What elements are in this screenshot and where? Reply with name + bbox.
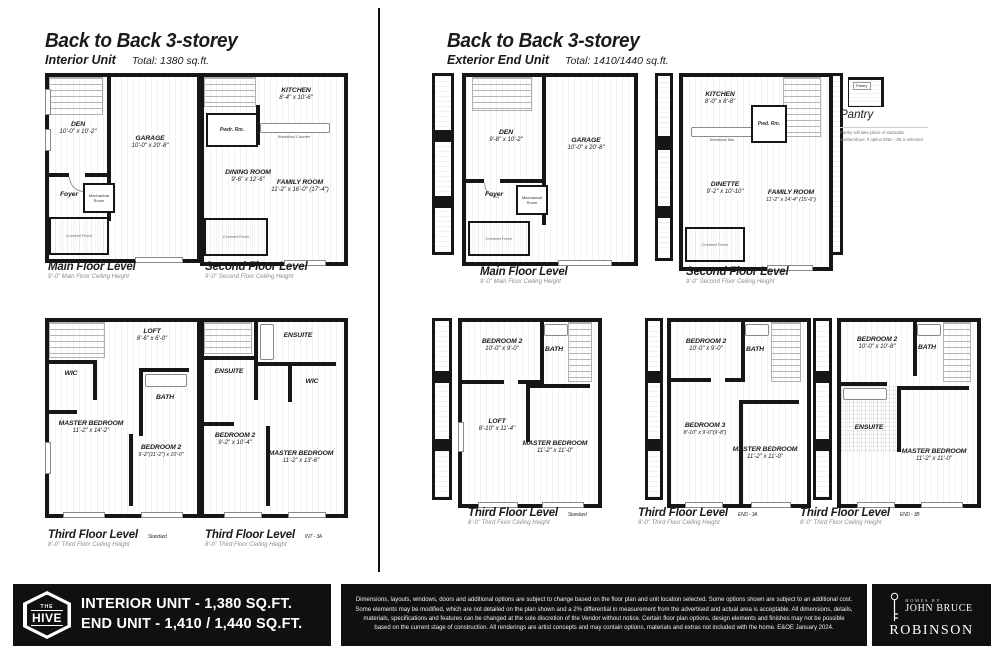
- room-label-bath: BATH: [143, 394, 187, 402]
- wall-segment: [500, 179, 546, 183]
- pantry-heading: Pantry: [840, 109, 873, 121]
- bathtub-fixture: [145, 374, 187, 387]
- breakfast-bar-island: [691, 127, 755, 137]
- stairs: [943, 322, 971, 382]
- caption-end-third-3b: Third Floor LevelEND - 3B 8'-0" Third Fl…: [800, 507, 919, 526]
- pantry-diagram: Pantry: [848, 77, 884, 107]
- room-label-bedroom2: BEDROOM 2 9'-2"(11'-2") x 10'-0": [133, 444, 189, 459]
- caption-end-main: Main Floor Level 9'-0" Main Floor Ceilin…: [480, 266, 568, 285]
- caption-interior-main: Main Floor Level 9'-0" Main Floor Ceilin…: [48, 261, 136, 280]
- wall-segment: [258, 362, 336, 366]
- wall-segment: [49, 173, 69, 177]
- room-label-family: FAMILY ROOM 11'-2" x 14'-4" (15'-6"): [763, 189, 819, 204]
- stairs: [49, 322, 105, 358]
- caption-end-second: Second Floor Level 9'-0" Second Floor Ce…: [686, 266, 788, 285]
- window-marker: [458, 422, 464, 452]
- mechanical-room: Mechanical Room: [516, 185, 548, 215]
- plan-end-third-3a: BEDROOM 2 10'-0" x 9'-0" BATH BEDROOM 3 …: [645, 318, 803, 510]
- covered-porch: Covered Porch: [468, 221, 530, 256]
- stairs: [49, 77, 103, 115]
- door-arc: [69, 177, 84, 192]
- side-wall-strip: [655, 73, 673, 261]
- bathtub-fixture: [745, 324, 769, 336]
- room-label-family: FAMILY ROOM 11'-2" x 16'-0" (17'-4"): [266, 179, 334, 195]
- room-label-garage: GARAGE 10'-0" x 20'-8": [550, 137, 622, 153]
- room-label-bedroom2: BEDROOM 2 10'-0" x 9'-0": [466, 338, 538, 354]
- room-label-den: DEN 9'-8" x 10'-2": [472, 129, 540, 145]
- brand-name-line1: JOHN BRUCE: [905, 603, 972, 615]
- footer-disclaimer-bar: Dimensions, layouts, windows, doors and …: [341, 584, 867, 646]
- right-unit-type: Exterior End Unit: [447, 53, 549, 67]
- caption-interior-second: Second Floor Level 9'-0" Second Floor Ce…: [205, 261, 307, 280]
- room-label-ensuite-left: ENSUITE: [204, 368, 254, 376]
- side-wall-strip: [813, 318, 832, 500]
- footer-builder-logo: HOMES BY JOHN BRUCE ROBINSON: [872, 584, 991, 646]
- caption-end-third-standard: Third Floor LevelStandard 8'-0" Third Fl…: [468, 507, 587, 526]
- wall-segment: [526, 384, 530, 442]
- wall-segment: [725, 378, 745, 382]
- window-marker: [63, 512, 105, 518]
- wall-segment: [93, 360, 97, 400]
- window-marker: [45, 89, 51, 115]
- left-unit-type: Interior Unit: [45, 53, 116, 67]
- plan-interior-second-floor: Pwdr. Rm. KITCHEN 8'-4" x 10'-6" Breakfa…: [200, 73, 348, 266]
- window-marker: [224, 512, 262, 518]
- wall-segment: [254, 356, 258, 400]
- stairs: [204, 77, 256, 107]
- wall-segment: [49, 360, 93, 364]
- room-label-bath: BATH: [540, 346, 568, 354]
- side-wall-strip: [432, 318, 452, 500]
- room-label-wic: WIC: [49, 370, 93, 378]
- room-label-foyer: Foyer: [474, 191, 514, 199]
- wall-segment: [466, 179, 484, 183]
- room-label-loft: LOFT 8'-10" x 11'-4": [466, 418, 528, 434]
- covered-porch: Covered Porch: [204, 218, 268, 256]
- powder-room: Pwd. Rm.: [751, 105, 787, 143]
- powder-room: Pwdr. Rm.: [206, 113, 258, 147]
- end-unit-area: END UNIT - 1,410 / 1,440 SQ.FT.: [81, 615, 302, 635]
- wall-segment: [49, 410, 77, 414]
- closet-wall: [743, 400, 799, 404]
- plan-end-third-3b: BEDROOM 2 10'-0" x 10'-8" BATH ENSUITE M…: [813, 318, 973, 510]
- room-label-bath: BATH: [741, 346, 769, 354]
- stairs: [783, 77, 821, 137]
- room-label-master: MASTER BEDROOM 11'-2" x 11'-0": [731, 446, 799, 462]
- key-icon: [890, 592, 899, 622]
- caption-interior-third-standard: Third Floor LevelStandard 8'-0" Third Fl…: [48, 529, 167, 548]
- window-marker: [921, 502, 963, 508]
- covered-porch: Covered Porch: [685, 227, 745, 262]
- wall-segment: [204, 356, 254, 360]
- right-section-title: Back to Back 3-storey: [447, 30, 640, 53]
- room-label-wic: WIC: [292, 378, 332, 386]
- stairs: [204, 322, 252, 354]
- window-marker: [288, 512, 326, 518]
- room-label-ensuite-upper: ENSUITE: [262, 332, 334, 340]
- room-label-bedroom2: BEDROOM 2 10'-0" x 10'-8": [843, 336, 911, 352]
- left-section-subtitle: Interior Unit Total: 1380 sq.ft.: [45, 53, 209, 67]
- room-label-master: MASTER BEDROOM 11'-2" x 11'-0": [520, 440, 590, 456]
- room-label-master: MASTER BEDROOM 11'-2" x 14'-2": [49, 420, 133, 436]
- right-total-area: Total: 1410/1440 sq.ft.: [565, 55, 669, 67]
- right-section-subtitle: Exterior End Unit Total: 1410/1440 sq.ft…: [447, 53, 669, 67]
- wall-segment: [143, 368, 189, 372]
- wall-segment: [254, 322, 258, 356]
- room-label-bath: BATH: [913, 344, 941, 352]
- room-label-bedroom2: BEDROOM 2 9'-2" x 10'-4": [204, 432, 266, 448]
- stairs: [472, 77, 532, 111]
- mechanical-room: Mechanical Room: [83, 183, 115, 213]
- plan-end-third-standard: BEDROOM 2 10'-0" x 9'-0" BATH LOFT 8'-10…: [432, 318, 594, 510]
- interior-unit-area: INTERIOR UNIT - 1,380 SQ.FT.: [81, 595, 302, 615]
- bathtub-fixture: [843, 388, 887, 400]
- room-label-kitchen: KITCHEN 8'-0" x 8'-8": [687, 91, 753, 107]
- closet-wall: [530, 384, 590, 388]
- bathtub-fixture: [544, 324, 568, 336]
- footer-summary-bar: THE HIVE INTERIOR UNIT - 1,380 SQ.FT. EN…: [13, 584, 331, 646]
- pantry-note: Pantry will take place of stackable wash…: [840, 127, 928, 143]
- room-label-bedroom3: BEDROOM 3 8'-10" x 9'-0"(9'-8"): [671, 422, 739, 437]
- room-label-dinette: DINETTE 9'-2" x 10'-10": [689, 181, 761, 197]
- room-label-kitchen: KITCHEN 8'-4" x 10'-6": [260, 87, 332, 103]
- garage-door-marker: [135, 257, 183, 263]
- wall-segment: [671, 378, 711, 382]
- room-label-loft: LOFT 8'-6" x 6'-0": [119, 328, 185, 344]
- bathtub-fixture: [260, 324, 274, 360]
- side-wall-strip: [432, 73, 454, 255]
- plan-interior-third-standard: WIC LOFT 8'-6" x 6'-0" BATH MASTER BEDRO…: [45, 318, 201, 518]
- room-label-foyer: Foyer: [51, 191, 87, 199]
- wall-segment: [266, 426, 270, 506]
- closet-wall: [901, 386, 969, 390]
- window-marker: [45, 442, 51, 474]
- side-wall-strip: [645, 318, 663, 500]
- room-label-ensuite: ENSUITE: [841, 424, 897, 432]
- stairs: [771, 322, 801, 382]
- floorplan-sheet: { "left": { "title": "Back to Back 3-sto…: [0, 0, 1001, 648]
- left-section-title: Back to Back 3-storey: [45, 30, 238, 53]
- room-label-garage: GARAGE 10'-0" x 20'-8": [113, 135, 187, 151]
- wall-segment: [204, 422, 234, 426]
- breakfast-counter-island: [260, 123, 330, 133]
- bathtub-fixture: [917, 324, 941, 336]
- room-label-master: MASTER BEDROOM 11'-2" x 11'-0": [899, 448, 969, 464]
- window-marker: [141, 512, 183, 518]
- pantry-legend: Pantry Pantry Pantry will take place of …: [840, 77, 936, 167]
- brand-name-line2: ROBINSON: [889, 623, 973, 639]
- caption-end-third-3a: Third Floor LevelEND - 3A 8'-0" Third Fl…: [638, 507, 757, 526]
- stairs: [568, 322, 592, 382]
- left-total-area: Total: 1380 sq.ft.: [132, 55, 209, 67]
- room-label-master: MASTER BEDROOM 11'-2" x 13'-6": [268, 450, 334, 466]
- breakfast-counter-label: Breakfast Counter: [254, 134, 334, 139]
- room-label-den: DEN 10'-0" x 10'-2": [49, 121, 107, 137]
- plan-end-second-floor: KITCHEN 8'-0" x 8'-8" Breakfast Bar Pwd.…: [655, 73, 837, 263]
- section-divider: [378, 8, 380, 572]
- breakfast-bar-label: Breakfast Bar: [685, 137, 759, 142]
- plan-interior-third-int3a: ENSUITE ENSUITE WIC BEDROOM 2 9'-2" x 10…: [200, 318, 348, 518]
- wall-segment: [897, 386, 901, 452]
- footer-area-summary: INTERIOR UNIT - 1,380 SQ.FT. END UNIT - …: [81, 595, 302, 634]
- disclaimer-text: Dimensions, layouts, windows, doors and …: [355, 596, 853, 633]
- caption-interior-third-int3a: Third Floor LevelINT - 3A 8'-0" Third Fl…: [205, 529, 322, 548]
- hive-logo-icon: THE HIVE: [23, 591, 71, 639]
- covered-porch: Covered Porch: [49, 217, 109, 255]
- wall-segment: [462, 380, 504, 384]
- room-label-bedroom2: BEDROOM 2 10'-0" x 9'-0": [673, 338, 739, 354]
- wall-segment: [85, 173, 111, 177]
- plan-end-main-floor: DEN 9'-8" x 10'-2" GARAGE 10'-0" x 20'-8…: [432, 73, 630, 258]
- plan-interior-main-floor: DEN 10'-0" x 10'-2" GARAGE 10'-0" x 20'-…: [45, 73, 201, 263]
